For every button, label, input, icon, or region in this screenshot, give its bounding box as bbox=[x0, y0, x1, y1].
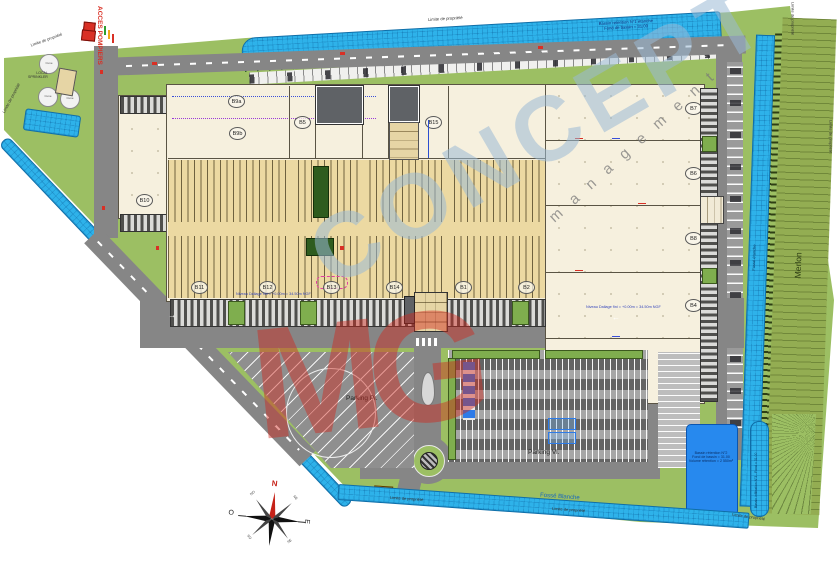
cell-b5-label: B5 bbox=[294, 116, 311, 129]
east-ditch-label: Fossé étanche bbox=[752, 244, 757, 270]
dock-canopy-4 bbox=[512, 301, 529, 325]
hydrant-mark-4 bbox=[340, 52, 345, 55]
dim-blue-2 bbox=[612, 336, 620, 337]
property-limit-right: Limite de propriété bbox=[828, 120, 832, 153]
dock-canopy-e2 bbox=[702, 268, 717, 284]
hydrant-mark-3 bbox=[152, 62, 157, 65]
site-plan-canvas: Bassin rétention N°1 étanche Fond de bas… bbox=[0, 0, 838, 562]
east-gatehouse bbox=[700, 196, 724, 224]
hydrant-mark-1 bbox=[100, 70, 103, 74]
fire-truck-icon bbox=[81, 21, 95, 39]
southeast-talus bbox=[772, 414, 816, 514]
compass-e: E bbox=[302, 519, 310, 524]
infiltration-basin bbox=[750, 421, 769, 517]
roof-block-east bbox=[389, 86, 419, 122]
cell-b9b-label: B9b bbox=[229, 127, 246, 140]
east-wing-divider-3 bbox=[546, 272, 702, 273]
compass-star bbox=[233, 482, 312, 555]
merlon-label: Merlon bbox=[794, 252, 804, 278]
sprinkler-tank-1-label: Cuve bbox=[45, 62, 52, 65]
property-limit-topleft: Limite de propriété bbox=[30, 32, 63, 47]
infiltration-basin-label: Bassin infiltration N°3 - Fond = 31.00 bbox=[755, 453, 759, 508]
vl-green-strip-2 bbox=[545, 350, 643, 359]
cell-b10-label: B10 bbox=[136, 194, 153, 207]
compass-rose: N O E NO NE SO SE bbox=[233, 482, 312, 555]
hydrant-mark-5 bbox=[538, 46, 543, 49]
reserved-stalls-2 bbox=[548, 432, 576, 444]
b10-south-docks bbox=[120, 214, 168, 232]
south-basin bbox=[686, 424, 738, 516]
fire-access-label: ACCES POMPIERS bbox=[96, 6, 103, 65]
cell-b2-label: B2 bbox=[518, 281, 535, 294]
property-limit-topright: Limite de propriété bbox=[790, 2, 794, 35]
legend-tick-orange bbox=[108, 30, 110, 39]
sprinkler-building-label: LOCAL SPRINKLER bbox=[28, 72, 48, 80]
hydrant-mark-2 bbox=[102, 206, 105, 210]
dock-canopy-e1 bbox=[702, 136, 717, 152]
sprinkler-tank-3-label: Cuve bbox=[66, 97, 73, 100]
roof-block-west bbox=[316, 86, 363, 124]
arrow-apron-1: ← bbox=[168, 312, 176, 321]
cell-b9b bbox=[168, 116, 288, 158]
legend-tick-red bbox=[112, 34, 114, 43]
arrow-apron-2: ← bbox=[612, 314, 620, 323]
car-parking-label: Parking Vl. bbox=[528, 449, 559, 456]
east-wing-divider-4 bbox=[546, 338, 702, 339]
cell-b11-label: B11 bbox=[191, 281, 208, 294]
dock-canopy-1 bbox=[228, 301, 245, 325]
hydrant-mark-6 bbox=[156, 246, 159, 250]
dim-red-2 bbox=[638, 203, 646, 204]
west-road bbox=[94, 46, 118, 238]
south-basin-label: Bassin rétention N°2 Fond de bassin = 31… bbox=[686, 452, 736, 464]
dim-red-3 bbox=[575, 270, 583, 271]
reserved-stalls-1 bbox=[548, 418, 576, 430]
compass-n: N bbox=[271, 480, 278, 489]
arrow-north-road-1: ← bbox=[292, 66, 300, 75]
compass-o: O bbox=[228, 509, 234, 517]
legend-tick-green bbox=[104, 26, 106, 35]
slab-level-note-east: Niveau Dallage fini = +0.00m = 34.50m NG… bbox=[586, 305, 661, 309]
wall-v1 bbox=[289, 86, 290, 158]
watermark-mg: MG bbox=[244, 277, 483, 473]
sprinkler-tank-2-label: Cuve bbox=[44, 95, 51, 98]
cell-b9a-label: B9a bbox=[228, 95, 245, 108]
b10-north-docks bbox=[120, 96, 168, 114]
arrow-north-road-2: ← bbox=[398, 62, 406, 71]
rack-aisle-1 bbox=[288, 160, 295, 298]
